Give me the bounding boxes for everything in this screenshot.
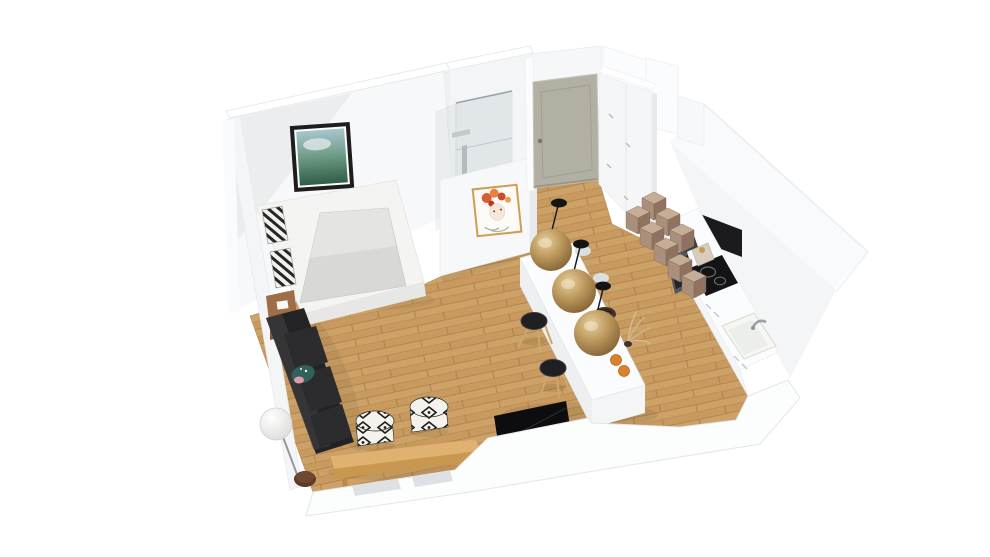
pendant-dome — [530, 229, 572, 271]
pendant-dome — [552, 269, 596, 313]
pendant-cap — [573, 240, 589, 249]
bathroom — [436, 46, 537, 276]
flower-woman-wall-art — [473, 185, 522, 236]
floorplan-3d-render: [[642,198],[626,212],[656,214],[640,228]… — [0, 0, 990, 557]
pendant-dome — [574, 310, 620, 356]
fruit — [611, 355, 622, 366]
landscape-wall-art — [290, 122, 354, 192]
pendant-cap — [551, 199, 567, 208]
pendant-cap — [595, 282, 611, 291]
pink-accent — [294, 377, 304, 384]
kilim-pouf — [355, 411, 395, 451]
storage-cube — [682, 270, 706, 298]
fruit — [619, 366, 630, 377]
plate — [593, 273, 609, 283]
door-handle — [538, 139, 542, 143]
kilim-pouf — [409, 397, 449, 437]
